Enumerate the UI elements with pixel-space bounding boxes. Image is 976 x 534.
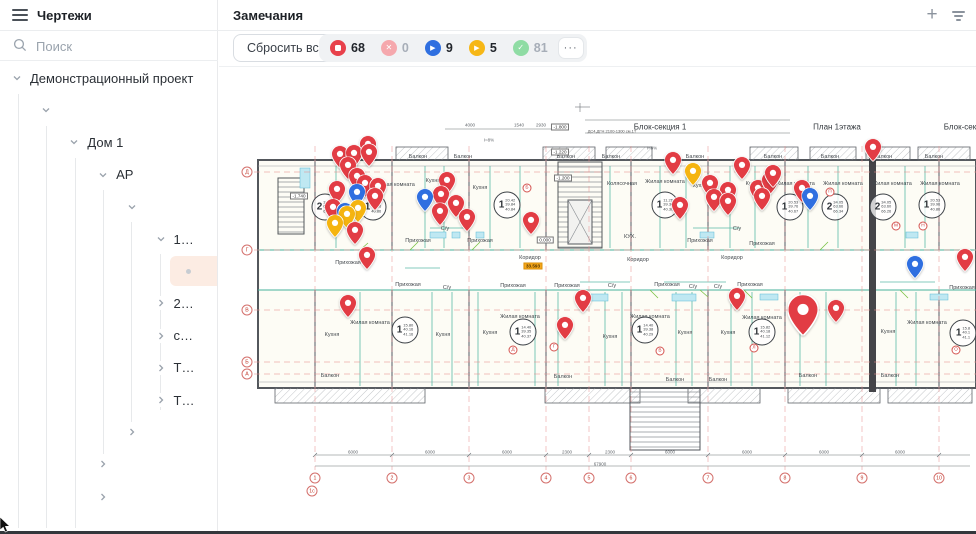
axis-marker: Д: [242, 167, 253, 178]
room-label: Прихожая: [500, 283, 526, 289]
room-label: Балкон: [799, 373, 817, 379]
room-label: Коридор: [627, 257, 649, 263]
axis-marker: 2: [387, 473, 398, 484]
unit-letter-badge: В: [656, 347, 665, 356]
remark-pin-red[interactable]: [957, 249, 974, 277]
unit-letter-badge: Д: [509, 346, 518, 355]
add-icon[interactable]: +: [922, 5, 942, 25]
axis-marker: 10: [934, 473, 945, 484]
search-icon: [13, 38, 27, 57]
room-label: Балкон: [454, 154, 472, 160]
tree-item-label: Т…: [174, 360, 195, 375]
apartment-badge: 115.8040.1641.16: [392, 317, 419, 344]
tree-item-1[interactable]: Дом 1: [0, 126, 217, 158]
dimension-label: 6000: [742, 450, 752, 455]
filter-chip-status-play-blue[interactable]: ▶9: [417, 40, 461, 56]
room-label: Колясочная: [607, 181, 637, 187]
drawings-sidebar: Чертежи Демонстрационный проектДом 1АР1……: [0, 0, 218, 534]
chip-count: 9: [446, 41, 453, 55]
apartment-badge: 120.4239.8440.84: [494, 192, 521, 219]
sidebar-title: Чертежи: [37, 8, 92, 23]
room-label: С/у: [733, 226, 741, 232]
dimension-label: 6000: [895, 450, 905, 455]
room-label: Кухня: [881, 329, 896, 335]
chevron-down-icon[interactable]: [67, 135, 81, 149]
remark-pin-red[interactable]: [672, 197, 689, 225]
remark-pin-red[interactable]: [828, 300, 845, 328]
room-label: Прихожая: [554, 283, 580, 289]
remark-pin-red[interactable]: [459, 209, 476, 237]
room-label: Кухня: [325, 332, 340, 338]
room-label: Балкон: [764, 154, 782, 160]
dimension-label: 6000: [665, 450, 675, 455]
header-divider: [0, 30, 976, 31]
remark-pin-blue[interactable]: [907, 256, 924, 284]
axis-marker: 5: [584, 473, 595, 484]
apartment-badge: 234.0563.6666.34: [822, 194, 849, 221]
tree-item[interactable]: [0, 94, 217, 126]
dimension-label: 6000: [819, 450, 829, 455]
axis-marker: 1с: [307, 486, 318, 497]
filter-icon[interactable]: [952, 11, 965, 23]
room-label: Балкон: [686, 154, 704, 160]
tree-item-[interactable]: АР: [0, 159, 217, 191]
chevron-right-icon[interactable]: [154, 296, 168, 310]
apartment-badge: 234.0563.6066.26: [870, 194, 897, 221]
room-label: Кухня: [473, 185, 488, 191]
tree-item-[interactable]: Т…: [0, 384, 217, 416]
room-label: Балкон: [666, 377, 684, 383]
room-label: Прихожая: [749, 241, 775, 247]
remark-pin-blue[interactable]: [802, 188, 819, 216]
dimension-label: 6000: [425, 450, 435, 455]
room-label: Жилая комната: [920, 181, 960, 187]
tree-item[interactable]: [0, 448, 217, 480]
chevron-right-icon[interactable]: [125, 425, 139, 439]
unit-letter-badge: П: [826, 188, 835, 197]
room-label: Балкон: [709, 377, 727, 383]
tree-item[interactable]: [0, 481, 217, 513]
apartment-badge: 114.4039.3840.29: [632, 317, 659, 344]
room-label: Прихожая: [949, 285, 975, 291]
room-label: Прихожая: [395, 282, 421, 288]
remark-pin-red[interactable]: [432, 203, 449, 231]
play-icon: ▶: [469, 40, 485, 56]
unit-letter-badge: Л: [750, 344, 759, 353]
chip-count: 68: [351, 41, 365, 55]
filter-chip-status-stop[interactable]: 68: [322, 40, 373, 56]
remark-pin-red[interactable]: [729, 288, 746, 316]
tree-item-[interactable]: с…: [0, 320, 217, 352]
axis-marker: 8: [780, 473, 791, 484]
tree-item-label: 1…: [174, 232, 194, 247]
unit-letter-badge: М: [892, 222, 901, 231]
room-label: Балкон: [821, 154, 839, 160]
elevation-label: -1.220: [551, 149, 569, 156]
room-label: Кухня: [721, 330, 736, 336]
more-filters-button[interactable]: ···: [558, 37, 584, 59]
remark-pin-red[interactable]: [754, 188, 771, 216]
remark-pin-red[interactable]: [347, 222, 364, 250]
room-label: Балкон: [321, 373, 339, 379]
chip-count: 81: [534, 41, 548, 55]
room-label: Жилая комната: [645, 179, 685, 185]
room-label: Прихожая: [335, 260, 361, 266]
chevron-down-icon[interactable]: [10, 71, 24, 85]
remarks-title: Замечания: [233, 8, 303, 23]
tree-item-2[interactable]: 2…: [0, 287, 217, 319]
remark-pin-red[interactable]: [734, 157, 751, 185]
remark-pin-yellow[interactable]: [327, 215, 344, 243]
room-label: КУХ.: [624, 234, 636, 240]
dimension-label: I=8%: [647, 146, 657, 151]
chevron-down-icon[interactable]: [96, 168, 110, 182]
dimension-label: 6000: [502, 450, 512, 455]
room-label: Жилая комната: [907, 320, 947, 326]
apartment-badge: 115.840.141.1: [950, 320, 976, 347]
dimension-label: 4000: [465, 123, 475, 128]
filter-chip-status-cancel[interactable]: ✕0: [373, 40, 417, 56]
x-icon: ✕: [381, 40, 397, 56]
remark-pin-red[interactable]: [575, 290, 592, 318]
elevation-label: -1.800: [551, 124, 569, 131]
room-label: Балкон: [925, 154, 943, 160]
plan-section-title: План 1этажа: [813, 123, 861, 132]
search-input[interactable]: [36, 34, 206, 58]
chevron-down-icon[interactable]: [39, 103, 53, 117]
remark-pin-red[interactable]: [720, 193, 737, 221]
chevron-right-icon[interactable]: [96, 457, 110, 471]
chevron-right-icon[interactable]: [154, 361, 168, 375]
stop-icon: [330, 40, 346, 56]
room-label: Балкон: [881, 373, 899, 379]
plan-section-title: Блок-секция 1: [634, 123, 687, 132]
selected-item-dot: [186, 269, 191, 274]
tree-item[interactable]: [0, 416, 217, 448]
dimension-label: 1540: [514, 123, 524, 128]
room-label: Кухня: [603, 334, 618, 340]
search-row: [0, 31, 218, 61]
room-label: Кухня: [483, 330, 498, 336]
remark-pin-red[interactable]: [523, 212, 540, 240]
elevation-highlight: 33.593: [523, 263, 542, 270]
axis-marker: 6: [626, 473, 637, 484]
remark-pin-red[interactable]: [865, 139, 882, 167]
room-label: Балкон: [409, 154, 427, 160]
axis-marker: 7: [703, 473, 714, 484]
tree-item-label: 2…: [174, 296, 194, 311]
elevation-label: -1.200: [554, 175, 572, 182]
axis-marker: 1: [310, 473, 321, 484]
room-label: Коридор: [721, 255, 743, 261]
room-label: Жилая комната: [872, 181, 912, 187]
chevron-down-icon[interactable]: [154, 232, 168, 246]
tree-item[interactable]: [0, 191, 217, 223]
remark-pin-red[interactable]: [340, 295, 357, 323]
mouse-cursor: [0, 517, 12, 534]
play-icon: ▶: [425, 40, 441, 56]
room-label: Прихожая: [687, 238, 713, 244]
apartment-badge: 115.8240.1841.12: [749, 319, 776, 346]
tree-item-[interactable]: Т…: [0, 352, 217, 384]
remark-pin-yellow[interactable]: [685, 163, 702, 191]
chevron-right-icon[interactable]: [154, 329, 168, 343]
axis-marker: 4: [541, 473, 552, 484]
dimension-label: 2300: [562, 450, 572, 455]
room-label: Прихожая: [467, 238, 493, 244]
floor-plan-viewport[interactable]: Блок-секция 1План 1этажаБлок-секция 2ДС4…: [219, 67, 976, 531]
room-label: С/у: [608, 283, 616, 289]
tree-item-label: Дом 1: [87, 135, 123, 150]
room-label: Жилая комната: [823, 181, 863, 187]
apartment-badge: 120.5339.9640.86: [919, 192, 946, 219]
dimension-label: 6000: [348, 450, 358, 455]
selected-item-highlight: [170, 256, 217, 286]
filter-chip-status-play-yellow[interactable]: ▶5: [461, 40, 505, 56]
chevron-right-icon[interactable]: [96, 490, 110, 504]
check-icon: ✓: [513, 40, 529, 56]
remark-pin-red[interactable]: [788, 294, 819, 340]
tree-item-label: Демонстрационный проект: [30, 71, 193, 86]
project-tree: Демонстрационный проектДом 1АР1…2…с…Т…Т…: [0, 62, 217, 531]
axis-marker: Б: [242, 357, 253, 368]
room-label: С/у: [443, 285, 451, 291]
unit-letter-badge: О: [952, 346, 961, 355]
tree-item-label: АР: [116, 167, 133, 182]
plan-note: ДС4,ДГН 2100-1300 см.1Т: [588, 129, 637, 134]
axis-marker: Г: [242, 245, 253, 256]
plan-section-title: Блок-секция 2: [944, 123, 976, 132]
axis-marker: 3: [464, 473, 475, 484]
filter-chip-status-check[interactable]: ✓81: [505, 40, 556, 56]
room-label: Кухня: [678, 330, 693, 336]
remark-pin-red[interactable]: [359, 247, 376, 275]
tree-item-label: с…: [174, 328, 194, 343]
room-label: Прихожая: [654, 282, 680, 288]
room-label: Балкон: [602, 154, 620, 160]
chevron-down-icon[interactable]: [125, 200, 139, 214]
tree-item-1[interactable]: 1…: [0, 223, 217, 255]
room-label: Коридор: [519, 255, 541, 261]
axis-marker: В: [242, 305, 253, 316]
dimension-label: 2300: [605, 450, 615, 455]
tree-item[interactable]: [0, 255, 217, 287]
axis-marker: А: [242, 369, 253, 380]
remark-pin-red[interactable]: [557, 317, 574, 345]
dimension-label: 67900: [594, 462, 607, 467]
chip-count: 5: [490, 41, 497, 55]
chip-count: 0: [402, 41, 409, 55]
unit-letter-badge: Н: [919, 222, 928, 231]
room-label: Прихожая: [405, 238, 431, 244]
room-label: С/у: [714, 284, 722, 290]
chevron-right-icon[interactable]: [154, 393, 168, 407]
unit-letter-badge: Б: [523, 184, 532, 193]
dimension-label: I=8%: [484, 138, 494, 143]
dimension-label: 2930: [536, 123, 546, 128]
apartment-badge: 114.4039.3540.37: [510, 319, 537, 346]
tree-item-label: Т…: [174, 393, 195, 408]
elevation-label: -1.740: [290, 193, 308, 200]
status-filter-group: 68✕0▶9▶5✓81···: [319, 34, 587, 62]
remark-pin-red[interactable]: [367, 188, 384, 216]
axis-marker: 9: [857, 473, 868, 484]
remark-pin-red[interactable]: [665, 152, 682, 180]
hamburger-menu-icon[interactable]: [12, 9, 28, 22]
tree-item-[interactable]: Демонстрационный проект: [0, 62, 217, 94]
room-label: Кухня: [436, 332, 451, 338]
room-label: Балкон: [554, 374, 572, 380]
room-label: С/у: [689, 284, 697, 290]
app-window: Чертежи Демонстрационный проектДом 1АР1……: [0, 0, 976, 534]
